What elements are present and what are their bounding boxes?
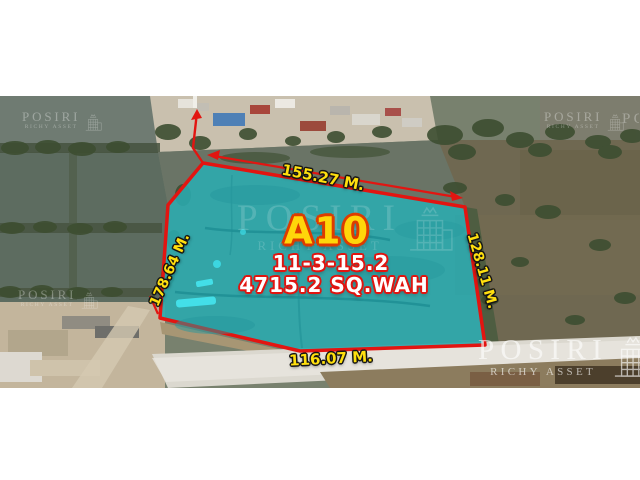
listing-image: POSIRI RICHY ASSET POSIRI RICHY ASSET PO… — [0, 0, 640, 480]
aerial-photo: POSIRI RICHY ASSET POSIRI RICHY ASSET PO… — [0, 96, 640, 388]
area-sqwah-label: 4715.2 SQ.WAH — [239, 275, 429, 295]
plot-id-label: A10 — [284, 213, 370, 250]
brown-field-patch — [470, 372, 540, 386]
dark-field-patch — [555, 366, 640, 384]
measurement-bottom-label: 116.07 M. — [289, 349, 373, 368]
area-rai-ngan-wah-label: 11-3-15.2 — [273, 253, 390, 273]
